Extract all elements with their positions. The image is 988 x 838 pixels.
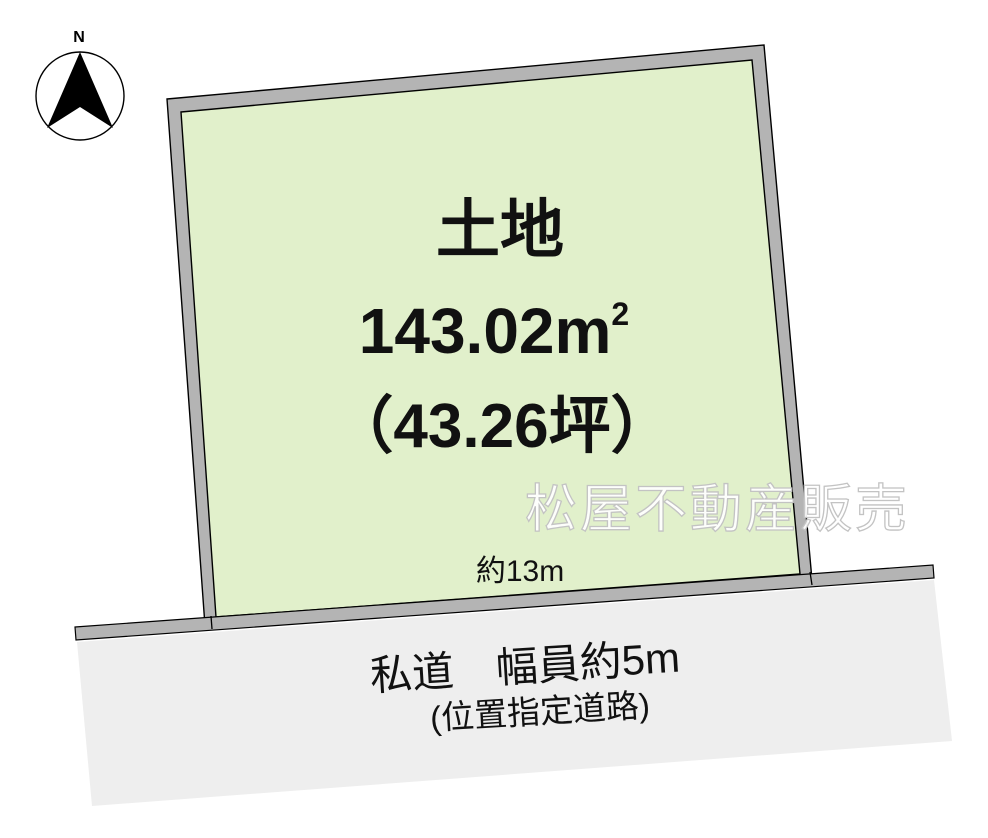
parcel-area-value: 143.02 xyxy=(359,295,555,367)
compass: N xyxy=(36,29,124,140)
parcel-area-unit: m xyxy=(555,295,612,367)
parcel-title: 土地 xyxy=(436,198,564,262)
frontage-dimension-label: 約13m xyxy=(476,557,564,587)
parcel-area-tsubo: （43.26坪） xyxy=(331,396,672,458)
parcel-area-label: 143.02m2 xyxy=(359,299,629,363)
compass-north-label: N xyxy=(73,29,85,46)
parcel-area-exponent: 2 xyxy=(611,296,629,332)
land-plot-diagram: N 土地 143.02m2 （43.26坪） 約13m 私道 幅員約5m (位置… xyxy=(0,0,988,838)
company-watermark: 松屋不動産販売 xyxy=(525,484,910,536)
